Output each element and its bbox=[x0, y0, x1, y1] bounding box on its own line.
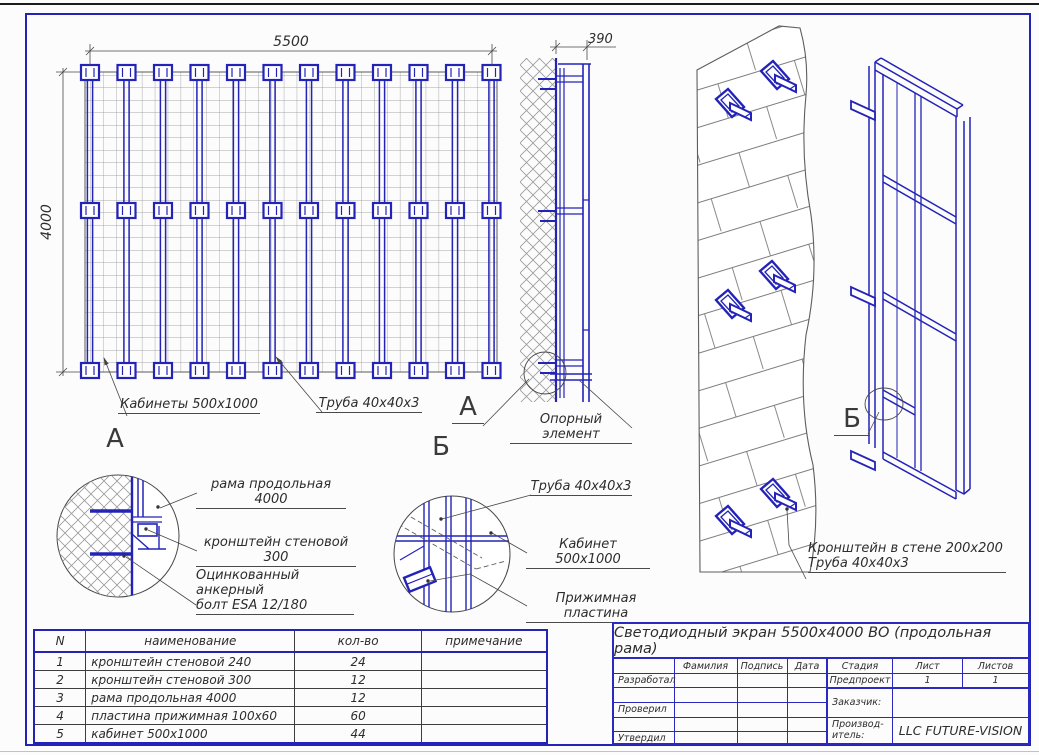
table-row: 5 кабинет 500x1000 44 bbox=[34, 725, 547, 744]
label-tube-detail-b: Труба 40x40x3 bbox=[530, 479, 632, 496]
dim-width-text: 5500 bbox=[273, 34, 309, 50]
stage-value: Предпроект bbox=[828, 673, 892, 687]
wall-hatch bbox=[520, 58, 556, 402]
label-tube-front: Труба 40x40x3 bbox=[316, 396, 422, 413]
detail-a-title: А bbox=[100, 424, 130, 454]
wall-isometric bbox=[697, 26, 816, 579]
col-stage: Стадия bbox=[828, 659, 892, 673]
detail-b bbox=[394, 495, 531, 612]
table-row: 1 кронштейн стеновой 240 24 bbox=[34, 652, 547, 671]
title-block: Светодиодный экран 5500x4000 ВО (продоль… bbox=[612, 622, 1030, 745]
col-name: наименование bbox=[86, 630, 295, 652]
col-note: примечание bbox=[421, 630, 547, 652]
table-row: 2 кронштейн стеновой 300 12 bbox=[34, 671, 547, 689]
label-cabinets: Кабинеты 500x1000 bbox=[118, 397, 260, 414]
label-support-element: Опорный элемент bbox=[510, 412, 632, 444]
sheets-value: 1 bbox=[963, 673, 1028, 687]
row-developed: Разработал bbox=[614, 673, 678, 687]
row-checked: Проверил bbox=[614, 702, 678, 716]
blueprint-page: 5500 4000 390 bbox=[0, 0, 1039, 755]
brick-wall bbox=[697, 26, 816, 572]
parts-table-header: N наименование кол-во примечание bbox=[34, 630, 547, 652]
col-date: Дата bbox=[787, 659, 827, 673]
dim-height-text: 4000 bbox=[39, 204, 55, 240]
col-qty: кол-во bbox=[295, 630, 421, 652]
front-view: 5500 4000 bbox=[39, 34, 501, 416]
col-surname: Фамилия bbox=[674, 659, 737, 673]
label-anchor-bolt-line1: Оцинкованный анкерный bbox=[196, 568, 354, 598]
sheet-value: 1 bbox=[893, 673, 962, 687]
manufacturer-label-line2: итель: bbox=[832, 730, 864, 741]
customer-label: Заказчик: bbox=[828, 689, 896, 716]
col-sheets: Листов bbox=[963, 659, 1028, 673]
col-signature: Подпись bbox=[737, 659, 787, 673]
table-row: 4 пластина прижимная 100x60 60 bbox=[34, 707, 547, 725]
label-wall-bracket-line2: Труба 40x40x3 bbox=[808, 556, 1006, 571]
table-row: 3 рама продольная 4000 12 bbox=[34, 689, 547, 707]
detail-a bbox=[56, 470, 197, 605]
marker-a-side: А bbox=[452, 392, 484, 424]
row-approved: Утвердил bbox=[614, 731, 678, 745]
side-view: 390 bbox=[483, 32, 632, 428]
label-cabinet-detail-b: Кабинет 500x1000 bbox=[526, 537, 650, 569]
label-pressure-plate: Прижимная пластина bbox=[526, 591, 666, 623]
label-wall-bracket-line1: Кронштейн в стене 200x200 bbox=[808, 541, 1006, 556]
label-frame-4000: рама продольная 4000 bbox=[196, 477, 346, 509]
col-sheet: Лист bbox=[893, 659, 962, 673]
col-n: N bbox=[34, 630, 86, 652]
manufacturer-value: LLC FUTURE-VISION bbox=[893, 717, 1028, 743]
marker-b-iso: Б bbox=[834, 404, 870, 436]
label-anchor-bolt: Оцинкованный анкерный болт ESA 12/180 bbox=[196, 568, 354, 615]
label-wall-bracket-300: кронштейн стеновой 300 bbox=[196, 535, 356, 567]
manufacturer-label-line1: Производ- bbox=[832, 719, 884, 730]
parts-table: N наименование кол-во примечание 1 кронш… bbox=[33, 629, 548, 744]
label-wall-bracket-200: Кронштейн в стене 200x200 Труба 40x40x3 bbox=[808, 541, 1006, 573]
drawing-title: Светодиодный экран 5500x4000 ВО (продоль… bbox=[614, 624, 1028, 657]
dim-depth-text: 390 bbox=[588, 32, 613, 47]
detail-b-title: Б bbox=[426, 432, 456, 462]
label-anchor-bolt-line2: болт ESA 12/180 bbox=[196, 598, 354, 613]
